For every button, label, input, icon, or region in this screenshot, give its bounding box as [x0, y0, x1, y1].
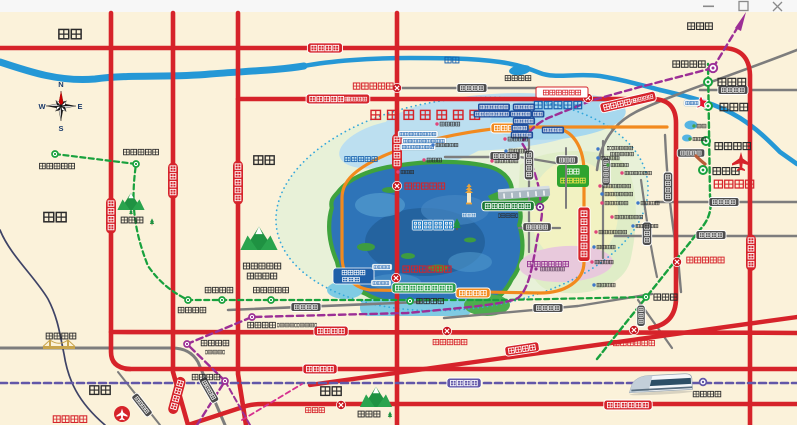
svg-text:N: N — [58, 80, 63, 89]
svg-text:S: S — [58, 124, 63, 133]
svg-text:E: E — [77, 102, 82, 111]
svg-text:W: W — [38, 102, 46, 111]
